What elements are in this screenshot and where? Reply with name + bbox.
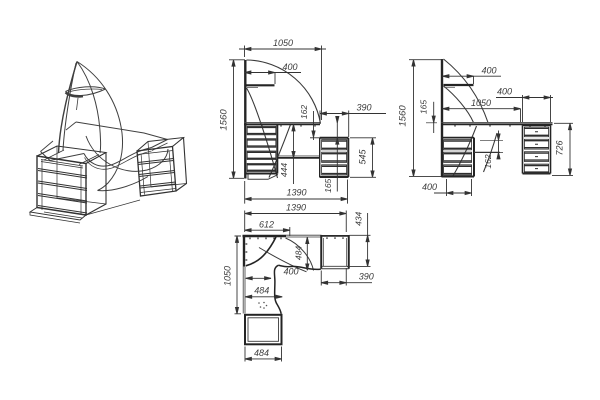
svg-text:1050: 1050 bbox=[273, 38, 293, 48]
svg-text:484: 484 bbox=[254, 286, 269, 296]
svg-text:400: 400 bbox=[283, 267, 298, 277]
svg-text:162: 162 bbox=[299, 105, 309, 119]
svg-text:1560: 1560 bbox=[398, 105, 409, 127]
svg-text:1050: 1050 bbox=[223, 266, 233, 286]
svg-text:612: 612 bbox=[259, 219, 274, 229]
svg-text:390: 390 bbox=[356, 102, 371, 112]
svg-text:390: 390 bbox=[359, 272, 374, 282]
svg-text:545: 545 bbox=[358, 149, 368, 165]
svg-text:1390: 1390 bbox=[286, 203, 306, 213]
svg-text:165: 165 bbox=[419, 100, 429, 114]
svg-text:434: 434 bbox=[353, 211, 363, 225]
svg-text:400: 400 bbox=[481, 65, 496, 75]
svg-text:726: 726 bbox=[555, 140, 565, 155]
svg-text:484: 484 bbox=[294, 246, 304, 260]
svg-text:484: 484 bbox=[254, 348, 269, 358]
svg-text:162: 162 bbox=[483, 154, 493, 168]
svg-text:165: 165 bbox=[323, 178, 333, 192]
svg-text:1050: 1050 bbox=[471, 98, 491, 108]
svg-text:400: 400 bbox=[422, 182, 437, 192]
svg-text:1560: 1560 bbox=[219, 109, 230, 131]
svg-text:400: 400 bbox=[497, 87, 512, 97]
svg-text:400: 400 bbox=[282, 62, 297, 72]
svg-text:1390: 1390 bbox=[286, 187, 306, 197]
svg-text:444: 444 bbox=[279, 163, 289, 177]
